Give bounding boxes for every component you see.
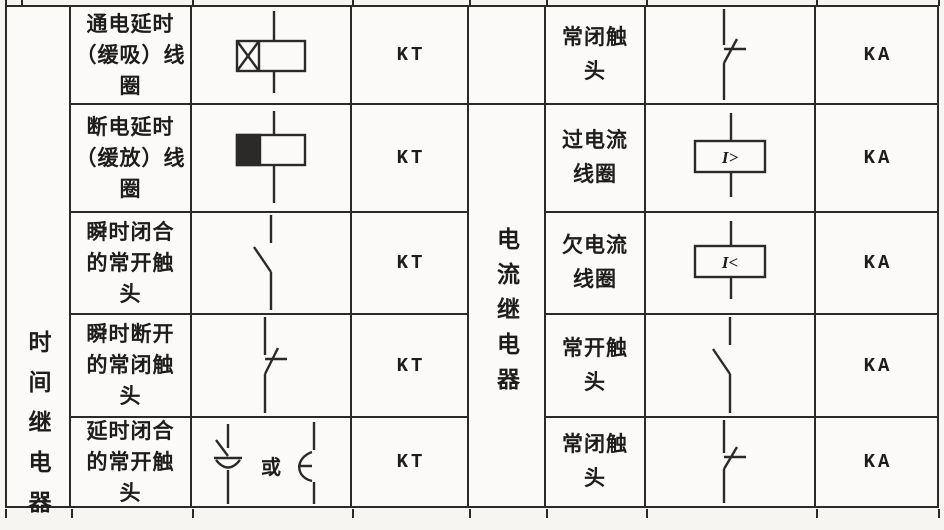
name-label: 断电延时 （缓放）线 圈 bbox=[76, 112, 186, 205]
code-cell: KT bbox=[352, 418, 469, 508]
gridline-stub bbox=[352, 509, 354, 518]
current-relay-category-cell: 电流继电器 bbox=[469, 105, 546, 508]
name-cell-nc-contact: 常闭触 头 bbox=[546, 418, 646, 508]
gridline-stub bbox=[469, 0, 471, 6]
gridline-stub bbox=[816, 509, 818, 518]
normally-open-contact-symbol bbox=[646, 315, 814, 416]
device-code: KT bbox=[394, 252, 426, 274]
name-label: 过电流 线圈 bbox=[562, 124, 628, 192]
symbol-cell bbox=[646, 418, 816, 508]
device-code: KT bbox=[394, 355, 426, 377]
svg-text:I>: I> bbox=[721, 148, 739, 167]
undercurrent-coil-symbol: I< bbox=[646, 213, 814, 313]
code-cell: KT bbox=[352, 213, 469, 315]
current-relay-category-label: 电流继电器 bbox=[490, 227, 524, 402]
symbol-cell bbox=[646, 7, 816, 105]
name-cell-overcurrent-coil: 过电流 线圈 bbox=[546, 105, 646, 213]
time-relay-category-label: 时间继电器 bbox=[21, 330, 55, 530]
device-code: KA bbox=[861, 451, 893, 473]
name-label: 延时闭合 的常开触 头 bbox=[87, 416, 175, 509]
device-code: KA bbox=[861, 147, 893, 169]
symbol-cell bbox=[192, 315, 352, 418]
name-cell-on-delay-coil: 通电延时 （缓吸）线 圈 bbox=[71, 7, 192, 105]
name-cell-instant-no-contact: 瞬时闭合 的常开触 头 bbox=[71, 213, 192, 315]
time-relay-category-cell: 时间继电器 bbox=[7, 7, 71, 508]
svg-text:I<: I< bbox=[721, 253, 738, 272]
device-code: KA bbox=[861, 355, 893, 377]
gridline-stub bbox=[646, 0, 648, 6]
gridline-stub bbox=[192, 509, 194, 518]
symbol-cell: 或 bbox=[192, 418, 352, 508]
device-code: KA bbox=[861, 252, 893, 274]
code-cell: KT bbox=[352, 315, 469, 418]
empty-cell bbox=[469, 7, 546, 105]
gridline-stub bbox=[469, 509, 471, 518]
code-cell: KA bbox=[816, 213, 939, 315]
symbol-cell: I> bbox=[646, 105, 816, 213]
name-label: 常开触 头 bbox=[562, 332, 628, 400]
code-cell: KA bbox=[816, 315, 939, 418]
normally-closed-contact-symbol bbox=[646, 7, 814, 103]
off-delay-coil-symbol bbox=[192, 105, 350, 211]
name-label: 欠电流 线圈 bbox=[562, 229, 628, 297]
delay-close-contact-pair-symbol: 或 bbox=[192, 418, 350, 506]
name-label: 通电延时 （缓吸）线 圈 bbox=[76, 9, 186, 102]
name-label: 常闭触 头 bbox=[562, 428, 628, 496]
gridline-stub bbox=[5, 0, 7, 6]
device-code: KT bbox=[394, 451, 426, 473]
device-code: KA bbox=[861, 44, 893, 66]
svg-text:或: 或 bbox=[261, 455, 281, 479]
code-cell: KA bbox=[816, 7, 939, 105]
gridline-stub bbox=[5, 509, 7, 518]
name-cell-no-contact: 常开触 头 bbox=[546, 315, 646, 418]
on-delay-coil-symbol bbox=[192, 7, 350, 103]
normally-closed-contact-symbol bbox=[192, 315, 350, 416]
gridline-stub bbox=[546, 0, 548, 6]
gridline-stub bbox=[938, 509, 940, 518]
symbol-cell bbox=[646, 315, 816, 418]
gridline-stub bbox=[192, 0, 194, 6]
gridline-stub bbox=[816, 0, 818, 6]
name-label: 常闭触 头 bbox=[562, 21, 628, 89]
name-cell-off-delay-coil: 断电延时 （缓放）线 圈 bbox=[71, 105, 192, 213]
device-code: KT bbox=[394, 147, 426, 169]
symbol-cell bbox=[192, 7, 352, 105]
code-cell: KT bbox=[352, 7, 469, 105]
code-cell: KT bbox=[352, 105, 469, 213]
name-label: 瞬时断开 的常闭触 头 bbox=[87, 319, 175, 412]
device-code: KT bbox=[394, 44, 426, 66]
code-cell: KA bbox=[816, 105, 939, 213]
symbol-cell bbox=[192, 213, 352, 315]
name-cell-undercurrent-coil: 欠电流 线圈 bbox=[546, 213, 646, 315]
overcurrent-coil-symbol: I> bbox=[646, 105, 814, 211]
symbol-cell: I< bbox=[646, 213, 816, 315]
gridline-stub bbox=[21, 0, 23, 6]
name-cell-delay-close-no-contact: 延时闭合 的常开触 头 bbox=[71, 418, 192, 508]
gridline-stub bbox=[352, 0, 354, 6]
name-label: 瞬时闭合 的常开触 头 bbox=[87, 217, 175, 310]
name-cell-nc-contact: 常闭触 头 bbox=[546, 7, 646, 105]
gridline-stub bbox=[71, 509, 73, 518]
normally-open-contact-symbol bbox=[192, 213, 350, 313]
relay-symbol-table: 时间继电器 通电延时 （缓吸）线 圈 KT 断电延时 （缓放）线 圈 KT 瞬时… bbox=[5, 5, 939, 508]
normally-closed-contact-symbol bbox=[646, 418, 814, 506]
gridline-stub bbox=[938, 0, 940, 6]
name-cell-instant-nc-contact: 瞬时断开 的常闭触 头 bbox=[71, 315, 192, 418]
code-cell: KA bbox=[816, 418, 939, 508]
gridline-stub bbox=[546, 509, 548, 518]
gridline-stub bbox=[646, 509, 648, 518]
symbol-cell bbox=[192, 105, 352, 213]
